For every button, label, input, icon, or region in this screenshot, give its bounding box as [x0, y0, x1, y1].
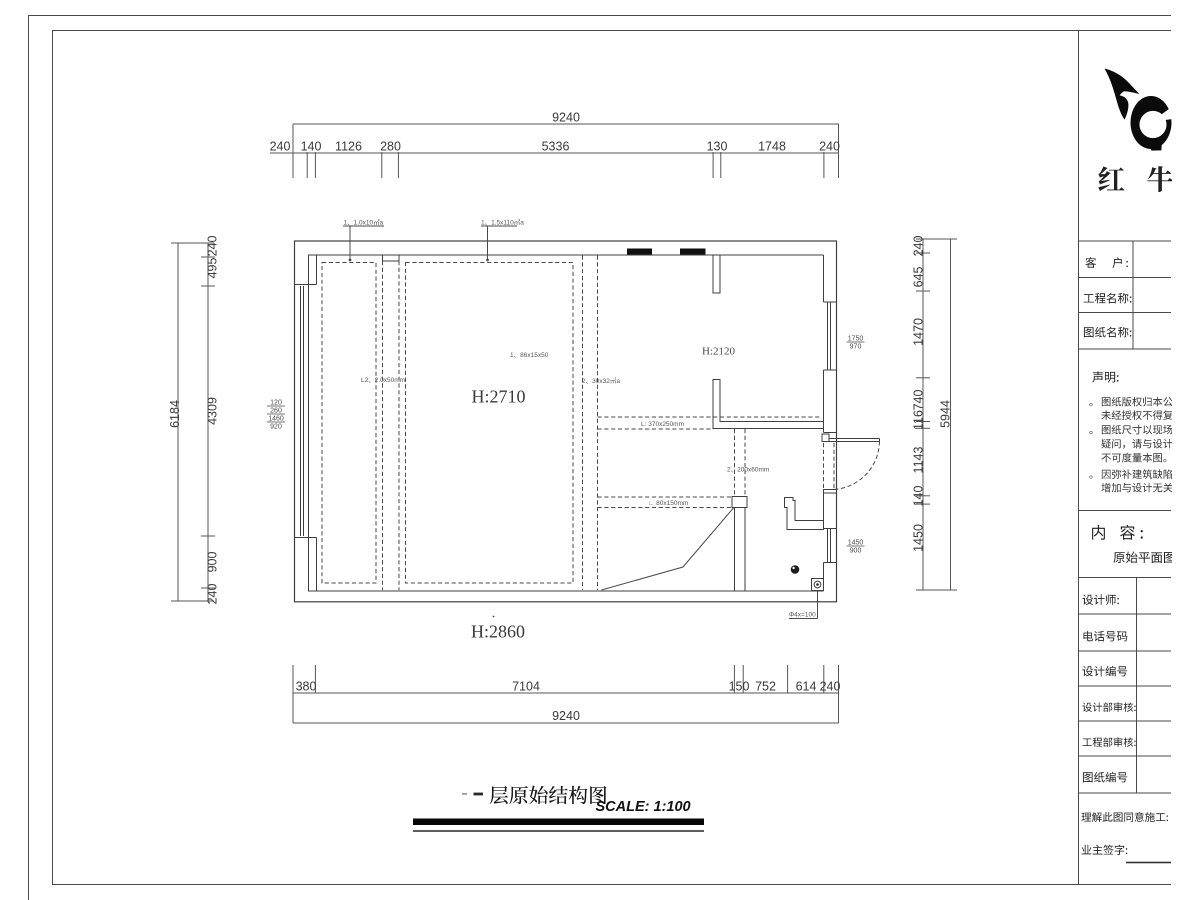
svg-text:1450: 1450 — [912, 524, 926, 552]
svg-text:240: 240 — [206, 236, 220, 257]
svg-text:9240: 9240 — [552, 111, 580, 125]
svg-text:645: 645 — [912, 267, 926, 288]
svg-text:120: 120 — [270, 400, 282, 407]
svg-text:495: 495 — [206, 258, 220, 279]
svg-text:4309: 4309 — [206, 397, 220, 425]
svg-text:116: 116 — [912, 410, 926, 430]
svg-text:7104: 7104 — [512, 680, 540, 694]
svg-text:1460: 1460 — [268, 416, 284, 423]
svg-text:260: 260 — [270, 408, 282, 415]
svg-text:240: 240 — [912, 236, 926, 257]
svg-text:9240: 9240 — [552, 709, 580, 723]
svg-text:H:2120: H:2120 — [702, 346, 736, 358]
svg-text:H:2860: H:2860 — [471, 622, 525, 642]
svg-text:920: 920 — [270, 424, 282, 431]
svg-text:140: 140 — [912, 486, 926, 507]
svg-text:240: 240 — [820, 680, 841, 694]
svg-text:1470: 1470 — [912, 318, 926, 346]
svg-text:1、1.5x110㎡a: 1、1.5x110㎡a — [481, 218, 524, 227]
svg-text:6184: 6184 — [168, 400, 182, 428]
svg-text:140: 140 — [301, 140, 322, 154]
svg-text:1、86x15x50: 1、86x15x50 — [510, 352, 549, 359]
svg-text:1750: 1750 — [848, 336, 864, 343]
svg-text:1748: 1748 — [758, 140, 786, 154]
svg-text:H:2710: H:2710 — [472, 387, 526, 407]
svg-text:L2、2.0x50mm: L2、2.0x50mm — [361, 377, 405, 384]
svg-text:1、1.0x10㎡a: 1、1.0x10㎡a — [344, 218, 384, 227]
svg-text:L: 370x250mm: L: 370x250mm — [641, 421, 684, 428]
svg-text:614: 614 — [796, 680, 817, 694]
svg-text:130: 130 — [707, 140, 728, 154]
svg-text:1126: 1126 — [335, 140, 362, 154]
svg-text:970: 970 — [850, 344, 862, 351]
svg-text:∟ 80x150mm: ∟ 80x150mm — [648, 500, 688, 507]
svg-text:752: 752 — [755, 680, 776, 694]
svg-text:150: 150 — [729, 680, 750, 694]
svg-text:380: 380 — [296, 680, 317, 694]
svg-text:5336: 5336 — [542, 140, 570, 154]
svg-text:900: 900 — [850, 548, 862, 555]
svg-text:900: 900 — [206, 552, 220, 573]
svg-text:240: 240 — [270, 140, 291, 154]
svg-text:740: 740 — [912, 390, 926, 411]
svg-text:2、30x32㎡a: 2、30x32㎡a — [582, 376, 620, 385]
svg-text:1143: 1143 — [912, 447, 926, 474]
svg-text:2、200x60mm: 2、200x60mm — [727, 467, 769, 474]
svg-text:240: 240 — [819, 140, 840, 154]
svg-text:1450: 1450 — [848, 540, 864, 547]
svg-text:Φ4x=100: Φ4x=100 — [789, 612, 816, 619]
svg-text:SCALE: 1:100: SCALE: 1:100 — [596, 799, 691, 815]
svg-text:240: 240 — [206, 584, 220, 605]
svg-text:5944: 5944 — [939, 400, 953, 428]
svg-text:280: 280 — [380, 140, 401, 154]
